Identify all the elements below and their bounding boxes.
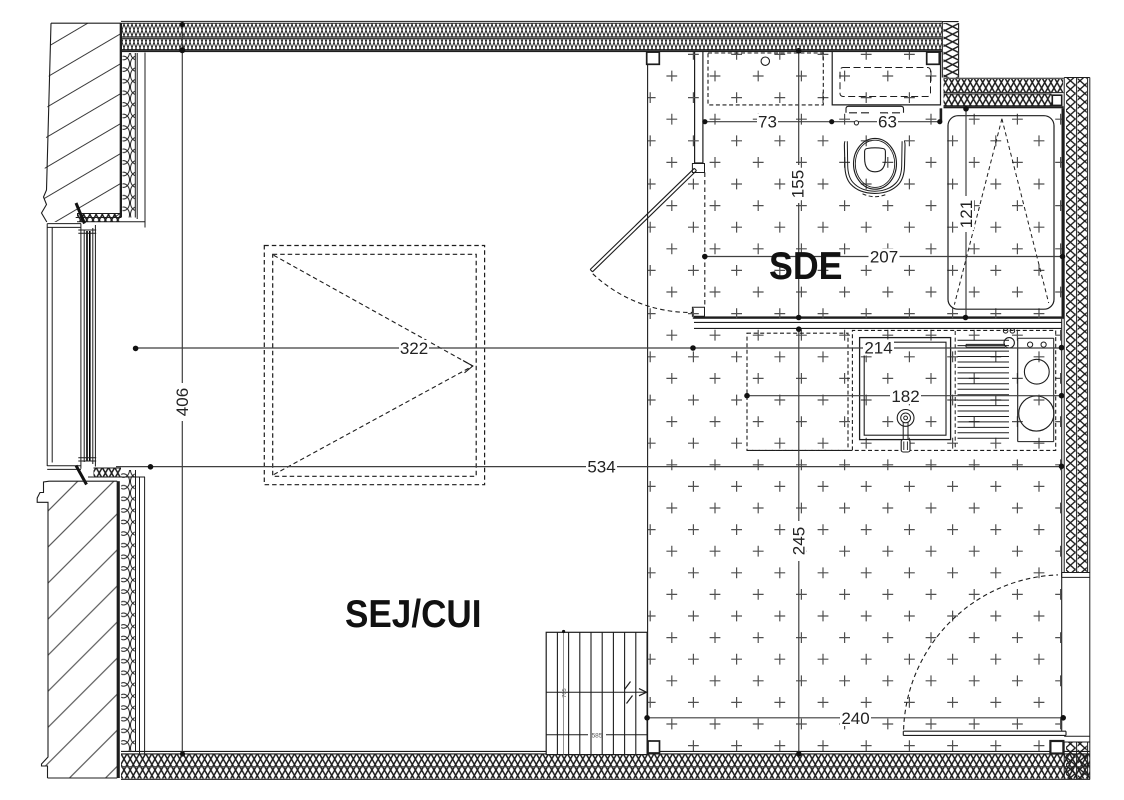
svg-text:214: 214 bbox=[864, 339, 892, 358]
svg-text:121: 121 bbox=[957, 200, 976, 228]
svg-text:155: 155 bbox=[789, 170, 808, 198]
svg-text:705: 705 bbox=[562, 688, 568, 697]
svg-text:SDE: SDE bbox=[769, 245, 843, 288]
svg-text:406: 406 bbox=[173, 388, 192, 416]
svg-text:207: 207 bbox=[870, 248, 898, 267]
svg-text:63: 63 bbox=[878, 113, 897, 132]
svg-text:245: 245 bbox=[790, 527, 809, 555]
svg-text:240: 240 bbox=[841, 709, 869, 728]
svg-text:SEJ/CUI: SEJ/CUI bbox=[345, 593, 482, 636]
svg-text:182: 182 bbox=[891, 387, 919, 406]
svg-text:585: 585 bbox=[592, 732, 603, 739]
svg-text:322: 322 bbox=[400, 339, 428, 358]
svg-text:534: 534 bbox=[587, 458, 615, 477]
svg-text:73: 73 bbox=[758, 113, 777, 132]
